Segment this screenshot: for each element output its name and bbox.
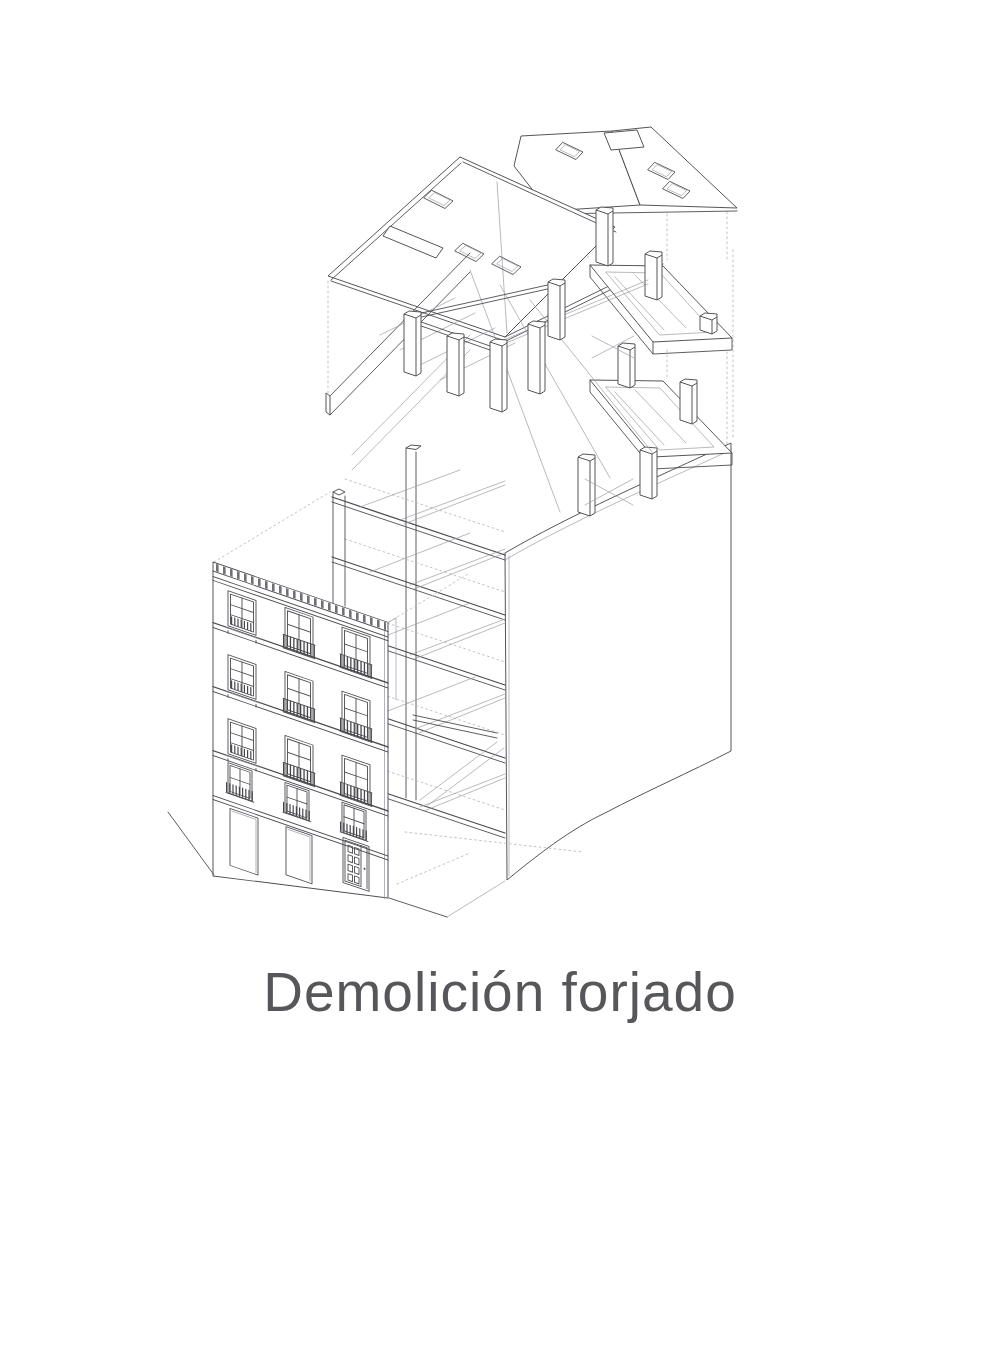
facade	[213, 562, 388, 936]
post	[680, 379, 697, 424]
caption: Demolición forjado	[0, 960, 1000, 1024]
stair-lines	[420, 742, 504, 806]
post	[528, 321, 545, 394]
post	[578, 454, 595, 516]
party-wall	[505, 443, 731, 880]
post	[548, 279, 565, 340]
post	[618, 343, 635, 388]
post	[640, 447, 657, 499]
architectural-drawing-sheet: Demolición forjado	[0, 0, 1000, 1350]
post	[596, 207, 613, 266]
roof-slot-notch	[604, 130, 644, 150]
axonometric-drawing	[0, 0, 1000, 1350]
post	[447, 333, 464, 396]
post	[404, 311, 421, 376]
facade-side-return	[388, 618, 396, 700]
post	[645, 251, 662, 300]
post	[490, 339, 507, 412]
post	[700, 313, 717, 334]
